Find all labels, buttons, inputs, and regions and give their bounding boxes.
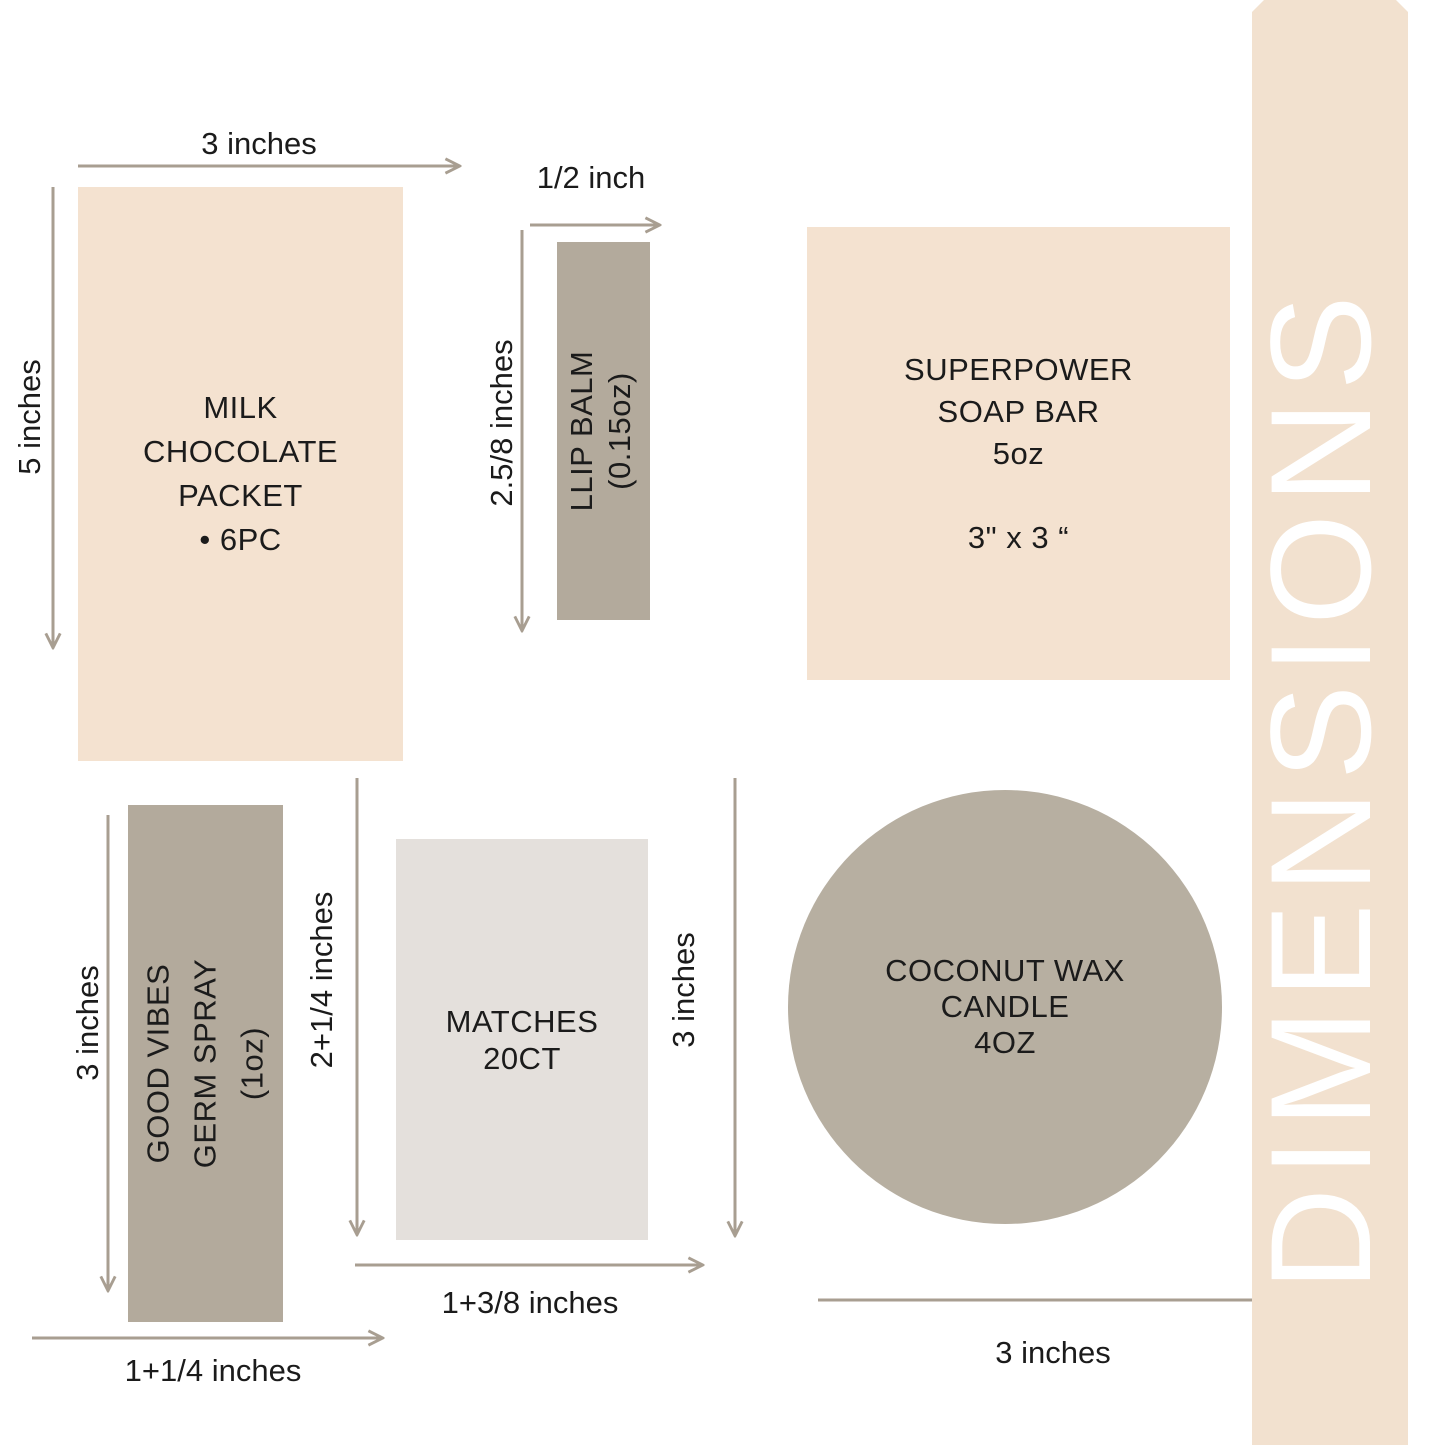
chocolate-width-label: 3 inches — [159, 124, 359, 164]
candle-label-line: COCONUT WAX — [885, 953, 1125, 989]
lip-balm-height-label: 2.5/8 inches — [484, 313, 520, 533]
soap-bar-size-label: 3" x 3 “ — [904, 517, 1133, 559]
chocolate-packet-label-line: MILK — [143, 386, 338, 430]
candle-shape: COCONUT WAX CANDLE 4OZ — [788, 790, 1222, 1224]
soap-bar-label-line: SOAP BAR — [904, 391, 1133, 433]
candle-width-label: 3 inches — [953, 1333, 1153, 1373]
candle-label-line: CANDLE — [885, 989, 1125, 1025]
germ-spray-width-label: 1+1/4 inches — [113, 1351, 313, 1391]
lip-balm-width-label: 1/2 inch — [491, 158, 691, 198]
matches-height-right-label: 3 inches — [666, 910, 702, 1070]
germ-spray-label-line: GERM SPRAY — [182, 864, 229, 1264]
matches-label-line: MATCHES — [446, 1003, 599, 1040]
lip-balm-label: LLIP BALM (0.15oz) — [563, 281, 643, 581]
matches-width-label: 1+3/8 inches — [430, 1283, 630, 1323]
chocolate-packet-label-line: • 6PC — [143, 518, 338, 562]
soap-bar-label: SUPERPOWER SOAP BAR 5oz 3" x 3 “ — [904, 349, 1133, 559]
matches-label: MATCHES 20CT — [446, 1003, 599, 1077]
lip-balm-label-line: (0.15oz) — [601, 281, 639, 581]
germ-spray-label-line: GOOD VIBES — [135, 864, 182, 1264]
chocolate-packet-label-line: PACKET — [143, 474, 338, 518]
soap-bar-shape: SUPERPOWER SOAP BAR 5oz 3" x 3 “ — [807, 227, 1230, 680]
chocolate-packet-shape: MILK CHOCOLATE PACKET • 6PC — [78, 187, 403, 761]
soap-bar-label-line: SUPERPOWER — [904, 349, 1133, 391]
lip-balm-label-line: LLIP BALM — [563, 281, 601, 581]
chocolate-packet-label-line: CHOCOLATE — [143, 430, 338, 474]
dimensions-infographic: MILK CHOCOLATE PACKET • 6PC LLIP BALM (0… — [0, 0, 1445, 1445]
candle-label-line: 4OZ — [885, 1025, 1125, 1061]
matches-shape: MATCHES 20CT — [396, 839, 648, 1240]
candle-label: COCONUT WAX CANDLE 4OZ — [885, 953, 1125, 1061]
germ-spray-label-line: (1oz) — [229, 864, 276, 1264]
soap-bar-label-line: 5oz — [904, 433, 1133, 475]
matches-label-line: 20CT — [446, 1040, 599, 1077]
chocolate-height-label: 5 inches — [12, 337, 48, 497]
soap-bar-label-gap — [904, 475, 1133, 517]
matches-height-left-label: 2+1/4 inches — [304, 870, 340, 1090]
chocolate-packet-label: MILK CHOCOLATE PACKET • 6PC — [143, 386, 338, 562]
germ-spray-label: GOOD VIBES GERM SPRAY (1oz) — [135, 864, 276, 1264]
dimensions-title: DIMENSIONS — [1244, 283, 1400, 1293]
germ-spray-height-label: 3 inches — [70, 943, 106, 1103]
